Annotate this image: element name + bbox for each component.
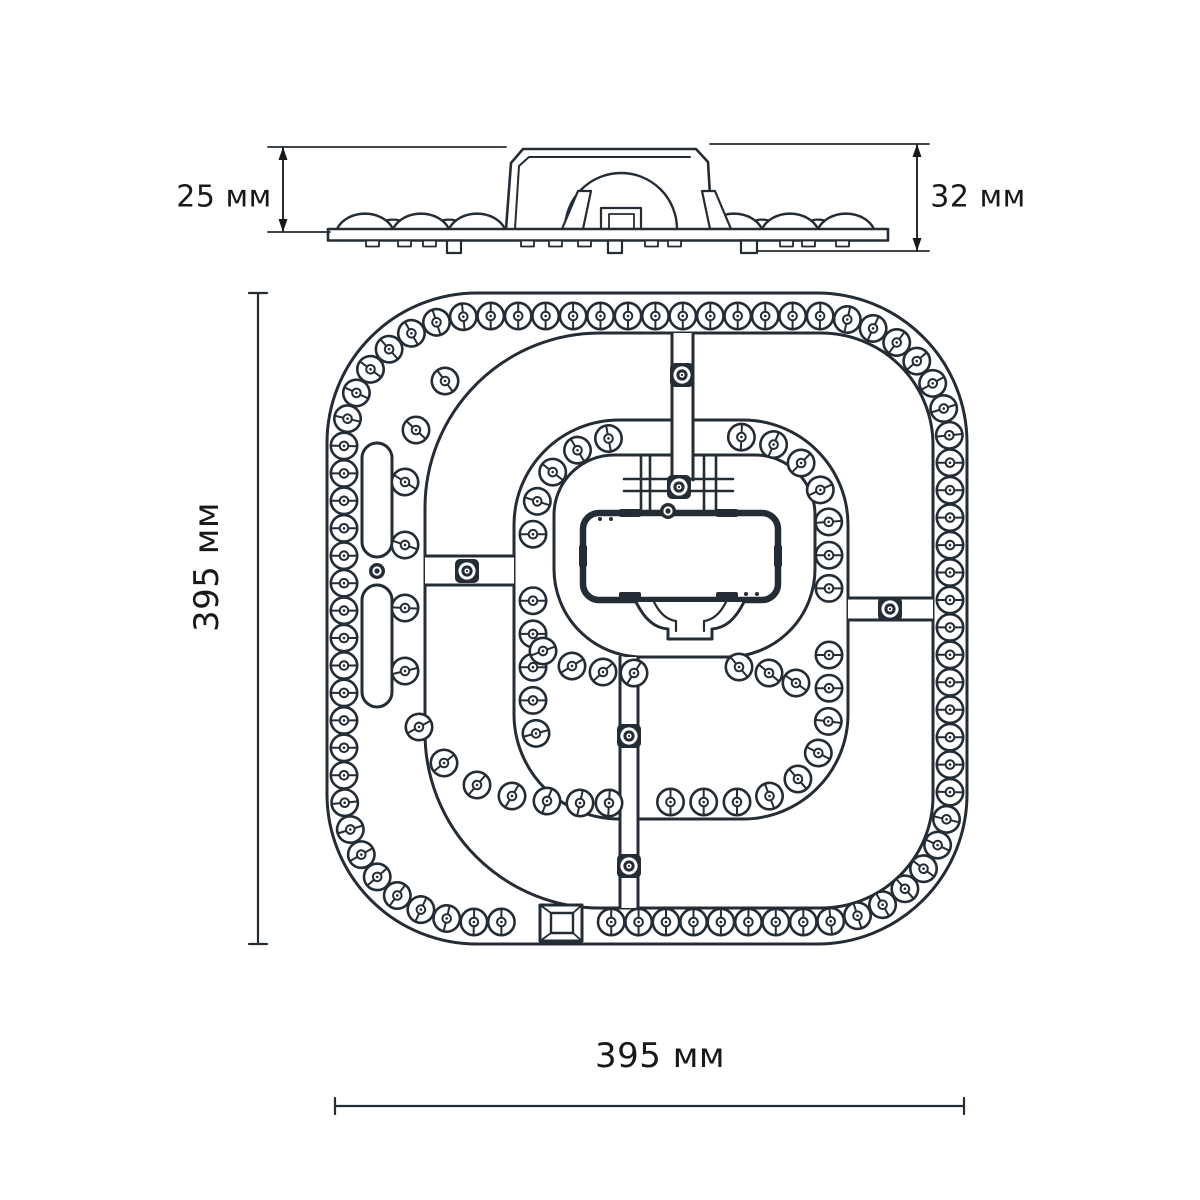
connector-block [540, 905, 582, 941]
screw [617, 724, 641, 748]
led-lens [937, 477, 963, 503]
led-lens [642, 303, 668, 329]
led-lens [937, 614, 963, 640]
led-lens [815, 508, 843, 536]
plan-view [249, 293, 967, 1114]
led-lens [937, 532, 963, 558]
led-lens [937, 504, 963, 530]
led-lens [937, 751, 963, 777]
screw [617, 854, 641, 878]
led-lens [520, 687, 546, 713]
led-lens [653, 909, 679, 935]
led-lens [587, 303, 613, 329]
led-lens [331, 625, 357, 651]
led-lens [331, 515, 357, 541]
screw [667, 475, 691, 499]
led-lens [625, 909, 651, 935]
led-lens [488, 909, 514, 935]
small-screw [369, 563, 385, 579]
led-lens [725, 303, 751, 329]
driver-box [579, 509, 782, 600]
led-lens [937, 642, 963, 668]
led-lens [331, 488, 357, 514]
led-lens [708, 909, 734, 935]
led-lens [807, 303, 834, 330]
led-lens [331, 432, 358, 459]
led-lens [816, 642, 842, 668]
led-lens [331, 460, 357, 486]
led-lens [657, 789, 683, 815]
led-lens [449, 302, 478, 331]
led-lens [391, 594, 419, 622]
driver-housing-profile [506, 149, 731, 229]
led-lens [735, 909, 761, 935]
screw [878, 597, 902, 621]
led-lens [331, 707, 357, 733]
led-lens [691, 789, 717, 815]
led-lens [816, 675, 842, 701]
led-lens [724, 789, 750, 815]
led-lens [615, 303, 641, 329]
bridge-top [672, 333, 693, 480]
screw [455, 559, 479, 583]
led-lens [935, 421, 964, 450]
small-screw [660, 503, 676, 519]
led-lens [331, 735, 357, 761]
led-lens [816, 907, 845, 936]
led-lens [532, 303, 558, 329]
led-lens [790, 909, 816, 935]
led-lens [670, 303, 696, 329]
led-lens [505, 303, 531, 329]
base-board-profile [328, 229, 888, 241]
side-height-32-label: 32 мм [930, 180, 1025, 215]
plan-width-395-label: 395 мм [595, 1036, 725, 1076]
led-lens [697, 303, 723, 329]
led-lens [937, 450, 963, 476]
led-lens [937, 724, 963, 750]
led-lens [937, 697, 963, 723]
led-lens [331, 680, 357, 706]
plan-height-395-label: 395 мм [187, 502, 227, 632]
led-lens [728, 423, 756, 451]
side-view [268, 144, 929, 253]
led-lens [816, 575, 842, 601]
dimension-395mm-vertical [249, 293, 267, 944]
led-lens [937, 559, 963, 585]
led-lens [763, 909, 789, 935]
led-lens [680, 909, 706, 935]
led-lens [937, 669, 963, 695]
led-lens [937, 779, 964, 806]
led-lens [520, 521, 546, 547]
technical-drawing-page: 25 мм 32 мм 395 мм 395 мм [0, 0, 1200, 1200]
screw [670, 363, 694, 387]
led-lens [520, 588, 546, 614]
side-height-25-label: 25 мм [176, 180, 271, 215]
led-lens [331, 652, 357, 678]
led-lens [595, 789, 623, 817]
led-lens [752, 303, 778, 329]
led-lens [331, 762, 357, 788]
led-lens [460, 909, 487, 936]
led-lens [478, 303, 504, 329]
dimension-395mm-horizontal [335, 1098, 964, 1114]
led-lens [331, 570, 357, 596]
led-lens [331, 543, 357, 569]
led-lens [779, 303, 805, 329]
led-lens [816, 542, 842, 568]
led-lens [598, 909, 624, 935]
led-lens [331, 597, 357, 623]
led-lens [560, 303, 586, 329]
led-lens [937, 587, 963, 613]
led-lens [330, 788, 359, 817]
